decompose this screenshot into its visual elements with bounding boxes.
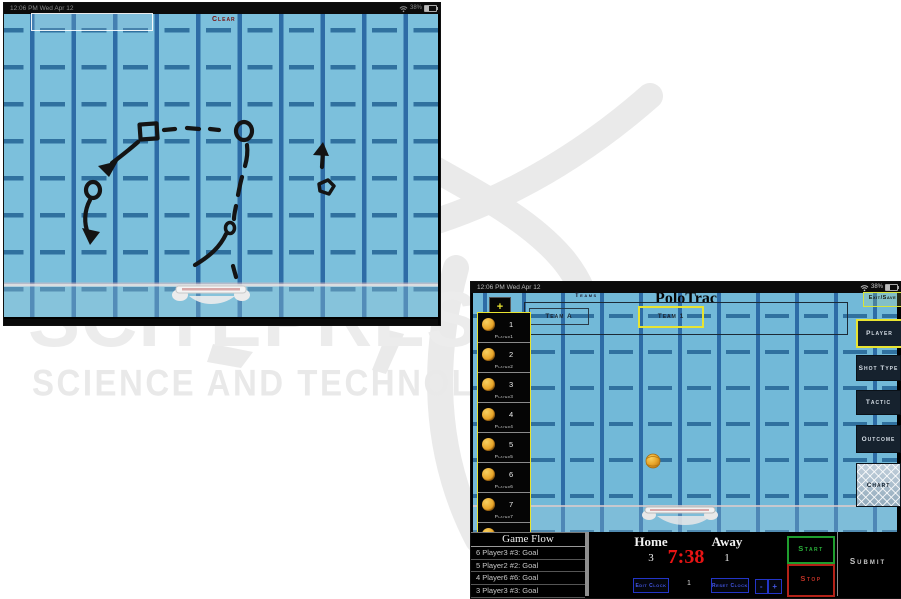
period-plus-button[interactable]: + — [768, 579, 782, 594]
menu-player-button[interactable]: Player — [856, 319, 901, 348]
clock-controls: Start Stop — [783, 532, 838, 596]
player-label: Player1 — [484, 335, 525, 340]
clear-button[interactable]: Clear — [212, 16, 236, 23]
bottom-panel: Game Flow 6 Player3 #3: Goal 5 Player2 #… — [471, 532, 899, 596]
home-score: 3 — [641, 552, 661, 564]
water-polo-ball-icon — [482, 468, 495, 481]
water-polo-ball-icon — [482, 438, 495, 451]
period-number: 1 — [684, 580, 694, 587]
player-number: 4 — [509, 410, 513, 419]
player-number: 1 — [509, 320, 513, 329]
player-button[interactable]: 3 Player3 — [478, 373, 530, 403]
player-label: Player5 — [484, 455, 525, 460]
edit-clock-button[interactable]: Edit Clock — [633, 578, 669, 593]
away-label: Away — [705, 534, 749, 550]
battery-icon — [885, 284, 898, 291]
tab-team-1[interactable]: Team 1 — [638, 306, 704, 328]
player-number: 2 — [509, 350, 513, 359]
player-label: Player2 — [484, 365, 525, 370]
player-roster-panel: 1 Player1 2 Player2 3 Player3 4 Player4 … — [477, 312, 531, 534]
game-flow-panel: Game Flow 6 Player3 #3: Goal 5 Player2 #… — [471, 532, 589, 596]
game-flow-event[interactable]: 6 Player3 #3: Goal — [471, 547, 585, 560]
waterline — [4, 283, 438, 285]
tool-palette-box[interactable] — [31, 13, 153, 31]
stop-button[interactable]: Stop — [787, 564, 835, 597]
bottom-bar — [4, 319, 438, 325]
game-flow-event[interactable]: 4 Player6 #6: Goal — [471, 572, 585, 585]
menu-chart-button[interactable]: Chart — [856, 463, 901, 507]
period-minus-button[interactable]: - — [755, 579, 768, 594]
player-number: 6 — [509, 470, 513, 479]
player-number: 7 — [509, 500, 513, 509]
clock-date-text: 12:06 PM Wed Apr 12 — [477, 282, 540, 293]
away-score: 1 — [717, 552, 737, 564]
player-label: Player6 — [484, 485, 525, 490]
player-button[interactable]: 2 Player2 — [478, 343, 530, 373]
exit-save-button[interactable]: Exit/Save — [863, 292, 901, 307]
player-label: Player7 — [484, 515, 525, 520]
player-number: 5 — [509, 440, 513, 449]
game-flow-title: Game Flow — [471, 532, 585, 547]
water-polo-ball-icon — [482, 408, 495, 421]
player-label: Player3 — [484, 395, 525, 400]
scoreboard: Home Away 3 1 7:38 Edit Clock 1 Reset Cl… — [589, 532, 783, 596]
water-polo-ball-icon — [482, 318, 495, 331]
menu-tactic-button[interactable]: Tactic — [856, 390, 901, 415]
ball-marker[interactable] — [646, 454, 660, 468]
status-icons: 38% — [399, 3, 437, 14]
battery-percent: 38% — [410, 3, 422, 14]
reset-clock-button[interactable]: Reset Clock — [711, 578, 749, 593]
teams-bar: Team A Team 1 — [524, 302, 848, 335]
tab-team-a[interactable]: Team A — [529, 308, 589, 325]
menu-outcome-button[interactable]: Outcome — [856, 425, 901, 453]
water-polo-ball-icon — [482, 348, 495, 361]
start-button[interactable]: Start — [787, 536, 835, 564]
game-clock: 7:38 — [663, 546, 709, 569]
tactics-sketch-screenshot: 12:06 PM Wed Apr 12 38% — [3, 2, 441, 326]
game-flow-event[interactable]: 5 Player2 #2: Goal — [471, 560, 585, 573]
player-button[interactable]: 4 Player4 — [478, 403, 530, 433]
menu-shot-type-button[interactable]: Shot Type — [856, 355, 901, 381]
player-button[interactable]: 5 Player5 — [478, 433, 530, 463]
player-number: 3 — [509, 380, 513, 389]
water-polo-ball-icon — [482, 498, 495, 511]
wifi-icon — [399, 5, 408, 13]
player-label: Player4 — [484, 425, 525, 430]
battery-icon — [424, 5, 437, 12]
polotrac-app-screenshot: 12:06 PM Wed Apr 12 38% — [470, 281, 901, 599]
water-polo-ball-icon — [482, 378, 495, 391]
player-button[interactable]: 1 Player1 — [478, 313, 530, 343]
game-flow-event[interactable]: 3 Player3 #3: Goal — [471, 585, 585, 598]
wifi-icon — [860, 284, 869, 292]
teams-label: Teams — [575, 293, 598, 299]
player-button[interactable]: 6 Player6 — [478, 463, 530, 493]
player-button[interactable]: 7 Player7 — [478, 493, 530, 523]
submit-button[interactable]: Submit — [837, 532, 899, 590]
pool-drawing-canvas[interactable] — [4, 14, 438, 317]
